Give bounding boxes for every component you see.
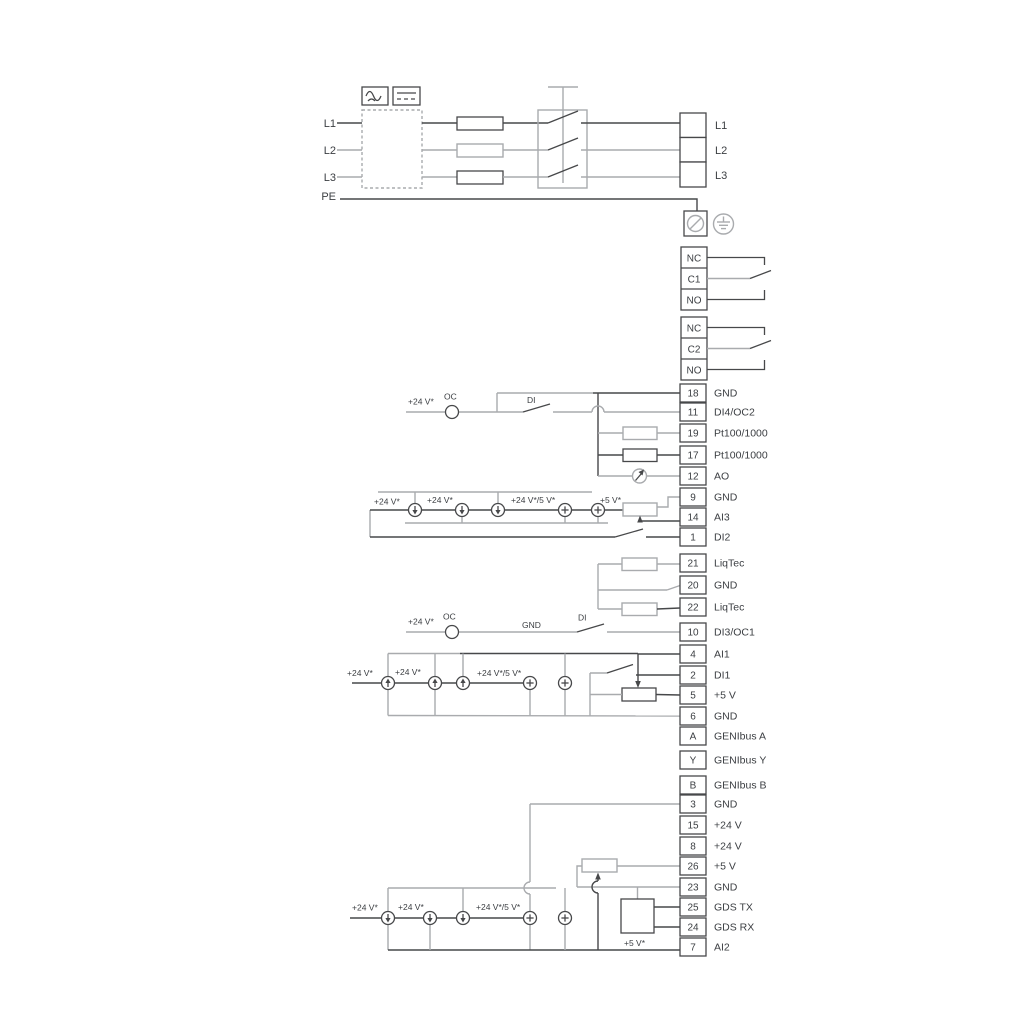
relay2-no: NO xyxy=(687,366,702,377)
terminal-label: DI3/OC1 xyxy=(714,627,755,639)
terminal-label: GENIbus A xyxy=(714,731,766,743)
gds-sensor-box xyxy=(621,899,654,933)
fuse-output-wires xyxy=(503,123,548,177)
terminal-number: 10 xyxy=(687,628,699,639)
relay1-nc: NC xyxy=(687,254,701,265)
terminal-number: 22 xyxy=(687,603,699,614)
v24-label: +24 V* xyxy=(398,902,424,912)
supply-plus-icon xyxy=(592,504,605,517)
terminal-number: 4 xyxy=(690,650,696,661)
terminal-row: 6GND xyxy=(680,707,738,725)
terminal-number: 24 xyxy=(687,923,699,934)
v24-label: +24 V* xyxy=(347,668,373,678)
relay1-contact xyxy=(707,258,771,300)
v5-label: +5 V* xyxy=(624,938,646,948)
terminal-label: GND xyxy=(714,882,738,894)
main-switch xyxy=(538,87,587,188)
terminal-number: 9 xyxy=(690,493,696,504)
potentiometer xyxy=(623,503,657,516)
terminal-row: AGENIbus A xyxy=(680,727,766,745)
terminal-label: GND xyxy=(714,711,738,723)
terminal-row: 14AI3 xyxy=(680,508,730,526)
terminal-row: 22LiqTec xyxy=(680,598,744,616)
terminal-number: 14 xyxy=(687,513,699,524)
terminal-row: 4AI1 xyxy=(680,645,730,663)
terminal-label: GND xyxy=(714,580,738,592)
terminal-label: GND xyxy=(714,388,738,400)
terminal-row: 8+24 V xyxy=(680,837,742,855)
pe-wire xyxy=(340,199,697,211)
dc-symbol-icon xyxy=(393,87,420,105)
terminal-row: 25GDS TX xyxy=(680,898,753,916)
terminal-number: 20 xyxy=(687,581,699,592)
supply-24v-icon xyxy=(409,504,422,517)
fuse-l2 xyxy=(457,144,503,157)
terminal-row: 1DI2 xyxy=(680,528,731,546)
terminal-label: DI4/OC2 xyxy=(714,407,755,419)
diagram-canvas: L1 L2 L3 PE L1 L2 L3 NC C1 NO NC C2 NO +… xyxy=(0,0,1024,1024)
wiring-diagram: L1 L2 L3 PE L1 L2 L3 NC C1 NO NC C2 NO +… xyxy=(0,0,1024,1024)
terminal-row: 26+5 V xyxy=(680,857,736,875)
motor-terminal-block xyxy=(680,113,706,187)
terminal-strip: 18GND 11DI4/OC2 19Pt100/1000 17Pt100/100… xyxy=(680,384,768,956)
relay2-block: NC C2 NO xyxy=(681,317,771,380)
supply-24v-icon xyxy=(456,504,469,517)
terminal-row: 3GND xyxy=(680,795,738,813)
terminal-number: 1 xyxy=(690,533,696,544)
wiper-arrow xyxy=(595,873,601,880)
terminal-number: 25 xyxy=(687,903,699,914)
relay2-contact xyxy=(707,328,771,370)
supply-plus-icon xyxy=(524,912,537,925)
oc-output-icon xyxy=(446,406,459,419)
terminal-label: +5 V xyxy=(714,861,736,873)
supply-24v-icon xyxy=(429,677,442,690)
terminal-number: 5 xyxy=(690,691,696,702)
input-label-l3: L3 xyxy=(324,172,336,184)
v24-v5-label: +24 V*/5 V* xyxy=(476,902,521,912)
terminal-row: 21LiqTec xyxy=(680,554,744,572)
terminal-label: LiqTec xyxy=(714,602,744,614)
terminal-number: 21 xyxy=(687,559,699,570)
di-label: DI xyxy=(527,395,536,405)
v24-v5-label: +24 V*/5 V* xyxy=(477,668,522,678)
terminal-row: 11DI4/OC2 xyxy=(680,403,755,421)
input-label-pe: PE xyxy=(321,191,336,203)
oc-label: OC xyxy=(444,392,457,402)
terminal-row: 24GDS RX xyxy=(680,918,754,936)
terminal-label: Pt100/1000 xyxy=(714,428,768,440)
motor-label-l3: L3 xyxy=(715,170,727,182)
relay1-block: NC C1 NO xyxy=(681,247,771,310)
terminal-number: 6 xyxy=(690,712,696,723)
v24-v5-label: +24 V*/5 V* xyxy=(511,495,556,505)
supply-24v-icon xyxy=(382,912,395,925)
terminal-row: 18GND xyxy=(680,384,738,402)
v24-label: +24 V* xyxy=(352,903,378,913)
mains-section: L1 L2 L3 PE L1 L2 L3 xyxy=(321,87,733,236)
supply-plus-icon xyxy=(559,912,572,925)
terminal-label: AI2 xyxy=(714,942,730,954)
terminal-row: 17Pt100/1000 xyxy=(680,446,768,464)
terminal-label: GND xyxy=(714,492,738,504)
v24-label: +24 V* xyxy=(427,495,453,505)
terminal-row: 12AO xyxy=(680,467,729,485)
terminal-number: 19 xyxy=(687,429,699,440)
mains-input-wires xyxy=(337,123,457,177)
terminal-label: +24 V xyxy=(714,841,742,853)
relay1-no: NO xyxy=(687,296,702,307)
terminal-label: +24 V xyxy=(714,820,742,832)
pt100-sensor xyxy=(623,449,657,462)
terminal-label: GENIbus B xyxy=(714,780,767,792)
switch-output-wires xyxy=(581,123,680,177)
terminal-number: 2 xyxy=(690,671,696,682)
motor-label-l2: L2 xyxy=(715,145,727,157)
liqtec-network xyxy=(598,558,680,616)
terminal-label: GDS TX xyxy=(714,902,753,914)
potentiometer xyxy=(582,859,617,872)
supply-plus-icon xyxy=(559,504,572,517)
di2-switch-blade xyxy=(615,529,643,537)
liqtec-sensor xyxy=(622,558,657,571)
terminal-row: 15+24 V xyxy=(680,816,742,834)
terminal-row: 2DI1 xyxy=(680,666,731,684)
oc-label: OC xyxy=(443,612,456,622)
terminal-label: LiqTec xyxy=(714,558,744,570)
terminal-label: DI1 xyxy=(714,670,731,682)
oc-output-icon xyxy=(446,626,459,639)
supply-plus-icon xyxy=(524,677,537,690)
v5-label: +5 V* xyxy=(600,495,622,505)
ai3-di2-network: +24 V* +24 V* +24 V*/5 V* +5 V* xyxy=(370,492,680,537)
terminal-number: Y xyxy=(690,756,697,767)
supply-plus-icon xyxy=(559,677,572,690)
v24-label: +24 V* xyxy=(408,397,434,407)
relay1-c1: C1 xyxy=(688,275,701,286)
frequency-converter-box xyxy=(362,110,422,188)
terminal-number: A xyxy=(690,732,697,743)
ai2-gds-network: +24 V* +24 V* +24 V*/5 V* +5 V* xyxy=(350,804,680,950)
v24-label: +24 V* xyxy=(374,497,400,507)
wiper-arrow xyxy=(635,681,641,688)
terminal-row: 5+5 V xyxy=(680,686,736,704)
terminal-row: 19Pt100/1000 xyxy=(680,424,768,442)
terminal-label: AI3 xyxy=(714,512,730,524)
di4-pt100-ao-network: +24 V* OC DI xyxy=(406,392,680,484)
supply-24v-icon xyxy=(492,504,505,517)
terminal-label: GENIbus Y xyxy=(714,755,766,767)
earth-screw-terminal-icon xyxy=(684,211,707,236)
di-label: DI xyxy=(578,613,587,623)
ai1-di1-network: +24 V* +24 V* +24 V*/5 V* xyxy=(347,654,680,717)
terminal-number: 15 xyxy=(687,821,699,832)
terminal-number: 23 xyxy=(687,883,699,894)
relay2-c2: C2 xyxy=(688,345,701,356)
terminal-label: AI1 xyxy=(714,649,730,661)
input-label-l1: L1 xyxy=(324,118,336,130)
terminal-row: BGENIbus B xyxy=(680,776,767,794)
pt100-sensor xyxy=(623,427,657,440)
terminal-number: 17 xyxy=(687,451,699,462)
fuse-l1 xyxy=(457,117,503,130)
terminal-row: 23GND xyxy=(680,878,738,896)
supply-24v-icon xyxy=(424,912,437,925)
di3-switch-blade xyxy=(577,624,604,632)
terminal-label: +5 V xyxy=(714,690,736,702)
terminal-number: B xyxy=(690,781,697,792)
terminal-number: 7 xyxy=(690,943,696,954)
terminal-number: 3 xyxy=(690,800,696,811)
gnd-label: GND xyxy=(522,620,541,630)
relay2-nc: NC xyxy=(687,324,701,335)
terminal-row: 7AI2 xyxy=(680,938,730,956)
supply-24v-icon xyxy=(457,912,470,925)
di1-switch-blade xyxy=(607,665,633,674)
earth-ground-icon xyxy=(714,214,734,234)
liqtec-sensor xyxy=(622,603,657,616)
terminal-number: 12 xyxy=(687,472,699,483)
supply-24v-icon xyxy=(382,677,395,690)
fuse-l3 xyxy=(457,171,503,184)
ac-symbol-icon xyxy=(362,87,388,105)
di4-switch-blade xyxy=(523,404,550,412)
motor-label-l1: L1 xyxy=(715,120,727,132)
v24-label: +24 V* xyxy=(408,617,434,627)
terminal-number: 26 xyxy=(687,862,699,873)
terminal-row: 20GND xyxy=(680,576,738,594)
terminal-label: Pt100/1000 xyxy=(714,450,768,462)
terminal-number: 11 xyxy=(688,408,699,419)
terminal-label: GDS RX xyxy=(714,922,754,934)
terminal-row: 10DI3/OC1 xyxy=(680,623,755,641)
potentiometer xyxy=(622,688,656,701)
terminal-label: DI2 xyxy=(714,532,731,544)
terminal-number: 18 xyxy=(687,389,699,400)
terminal-label: GND xyxy=(714,799,738,811)
terminal-row: YGENIbus Y xyxy=(680,751,766,769)
terminal-number: 8 xyxy=(690,842,696,853)
terminal-row: 9GND xyxy=(680,488,738,506)
terminal-label: AO xyxy=(714,471,729,483)
supply-24v-icon xyxy=(457,677,470,690)
v24-label: +24 V* xyxy=(395,667,421,677)
input-label-l2: L2 xyxy=(324,145,336,157)
